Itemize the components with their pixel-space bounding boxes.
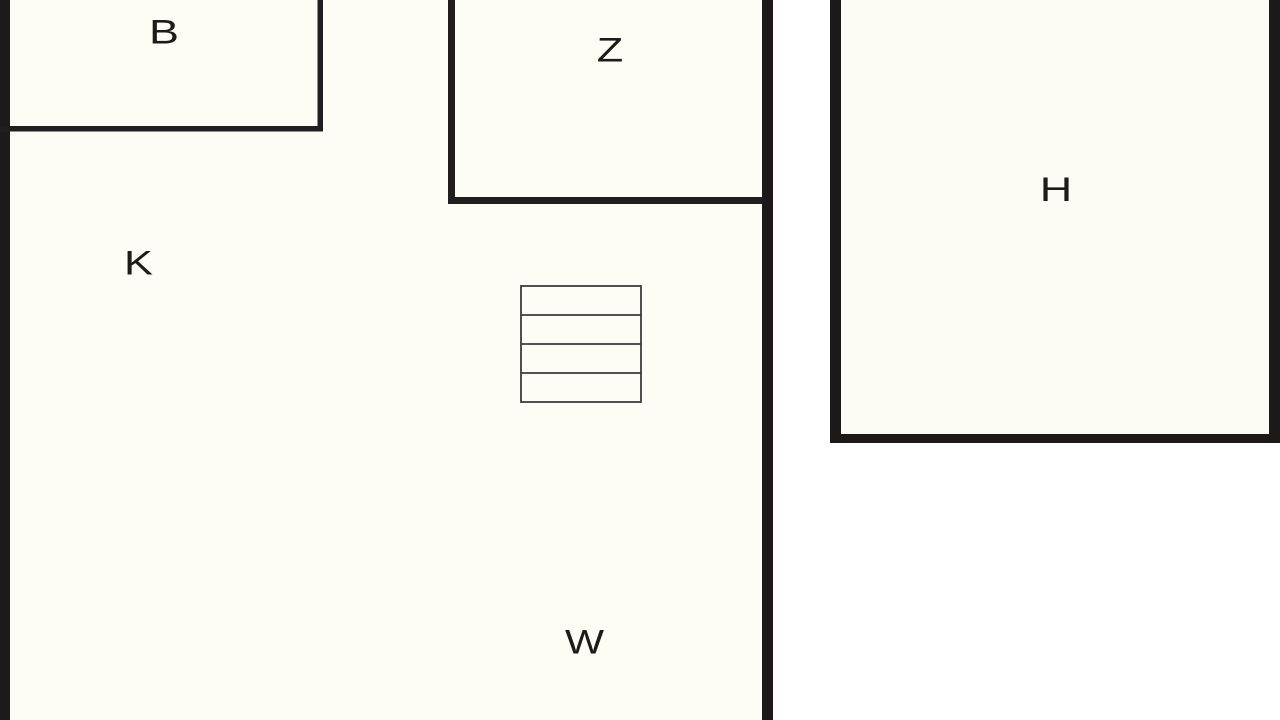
svg-text:Z: Z bbox=[597, 32, 624, 70]
svg-text:B: B bbox=[149, 14, 179, 52]
svg-text:W: W bbox=[565, 623, 604, 661]
svg-text:K: K bbox=[124, 245, 153, 283]
svg-text:H: H bbox=[1040, 171, 1073, 209]
